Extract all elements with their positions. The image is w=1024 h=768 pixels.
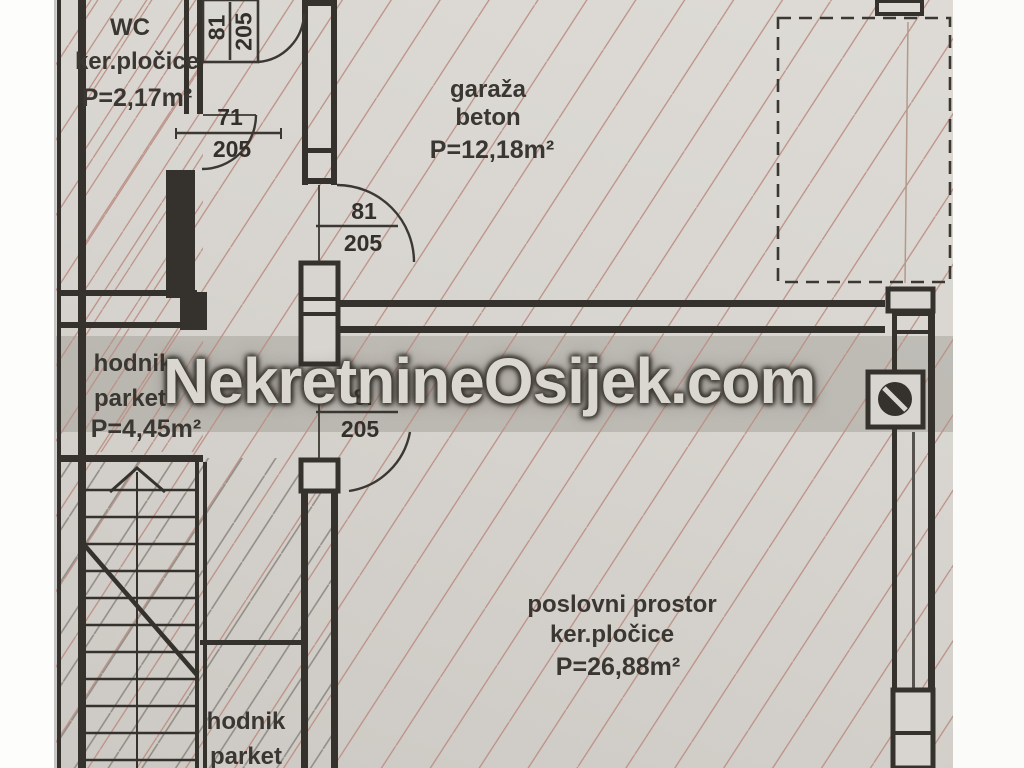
drain-symbol — [868, 372, 923, 427]
room-hall2-name: hodnik — [207, 708, 286, 736]
room-wc-floor: ker.pločice — [75, 48, 199, 76]
room-garage-floor: beton — [455, 104, 520, 132]
room-hall-area: P=4,45m² — [91, 415, 202, 444]
door-top-height: 205 — [231, 12, 258, 50]
floor-plan-photo: WC ker.pločice P=2,17m² garaža beton P=1… — [0, 0, 1024, 768]
door-garage-width: 81 — [351, 198, 377, 225]
door-wc-width: 71 — [217, 104, 243, 131]
room-office-floor: ker.pločice — [550, 621, 674, 649]
room-hall-name: hodnik — [94, 350, 173, 378]
room-hall2-floor: parket — [210, 743, 282, 768]
door-garage-height: 205 — [344, 230, 382, 257]
door-wc-height: 205 — [213, 136, 251, 163]
room-garage-name: garaža — [450, 76, 526, 104]
door-office-height: 205 — [341, 416, 379, 443]
room-office-name: poslovni prostor — [527, 591, 716, 619]
room-hall-floor: parket — [94, 385, 166, 413]
watermark-text: NekretnineOsijek.com — [163, 344, 815, 418]
room-wc-name: WC — [110, 14, 150, 42]
room-wc-area: P=2,17m² — [82, 84, 193, 113]
room-office-area: P=26,88m² — [556, 653, 680, 682]
door-top-width: 81 — [204, 15, 231, 41]
room-garage-area: P=12,18m² — [430, 136, 554, 165]
